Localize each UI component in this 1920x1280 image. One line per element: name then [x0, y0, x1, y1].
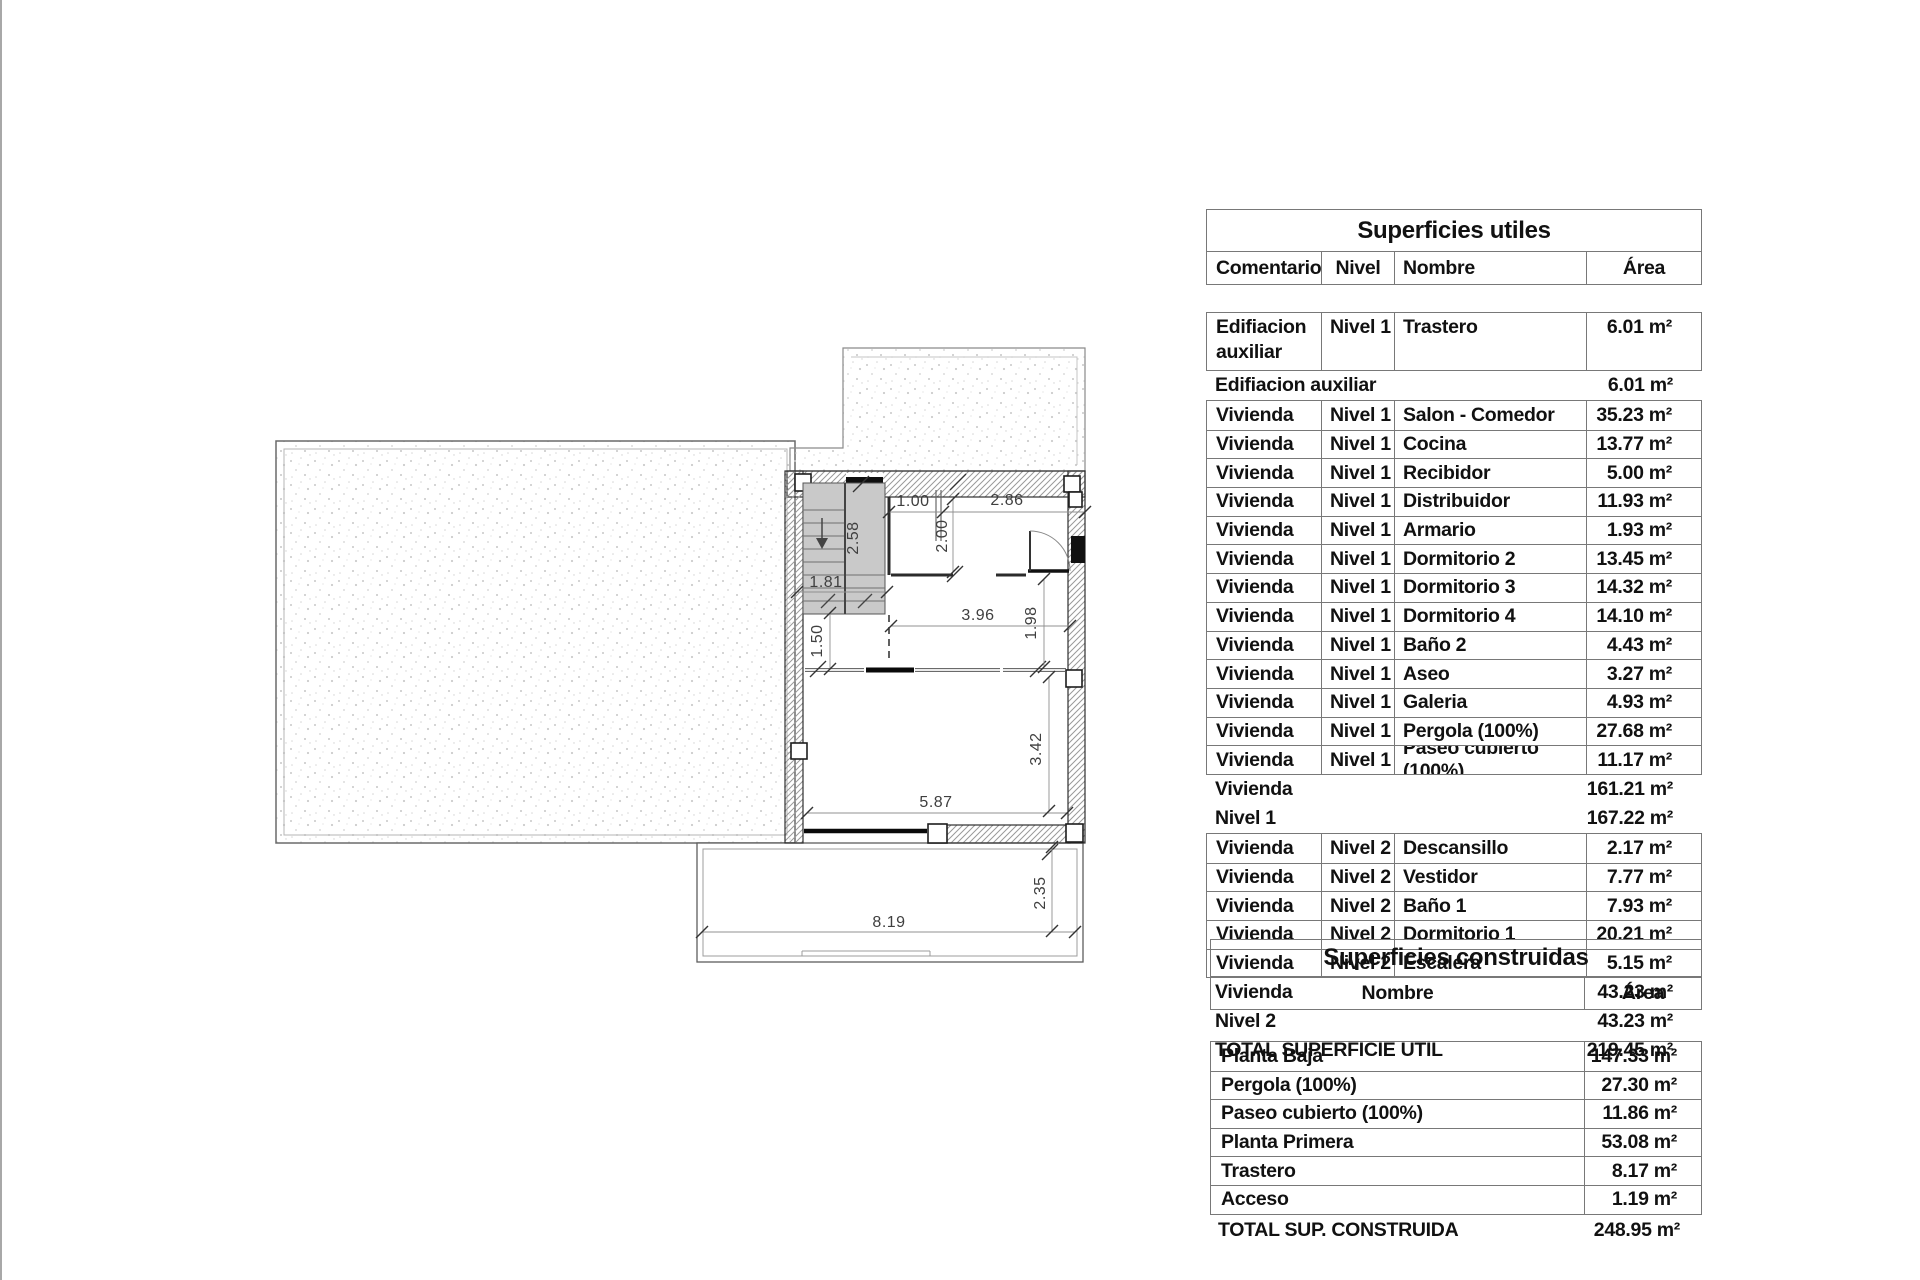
table-row: ViviendaNivel 1Armario1.93 m² — [1207, 516, 1701, 545]
column-header-nombre: Nombre — [1211, 977, 1584, 1009]
dimension-label: 2.35 — [1032, 876, 1049, 909]
cell-nombre: Dormitorio 3 — [1394, 574, 1586, 602]
table-row: Pergola (100%)27.30 m² — [1211, 1071, 1701, 1100]
cell-nombre: Aseo — [1394, 660, 1586, 688]
table-subtotal-row: Vivienda161.21 m² — [1206, 775, 1702, 804]
cell-area: 11.17 m² — [1586, 746, 1701, 774]
cell-nivel: Nivel 1 — [1321, 313, 1394, 370]
cell-comentarios: Vivienda — [1207, 660, 1321, 688]
column-header-nivel: Nivel — [1321, 252, 1394, 284]
cell-nombre: Armario — [1394, 517, 1586, 545]
table-subtotal-row: Nivel 1167.22 m² — [1206, 804, 1702, 833]
cell-comentarios: Vivienda — [1207, 401, 1321, 430]
cell-comentarios: Vivienda — [1207, 517, 1321, 545]
table-row: Edifiacion auxiliarNivel 1Trastero6.01 m… — [1207, 313, 1701, 370]
subtotal-value: 161.21 m² — [1587, 778, 1702, 801]
cell-area: 14.10 m² — [1586, 603, 1701, 631]
cell-nombre: Trastero — [1394, 313, 1586, 370]
cell-nombre: Cocina — [1394, 431, 1586, 459]
table-subtotal-row: Edifiacion auxiliar6.01 m² — [1206, 371, 1702, 400]
cell-comentarios: Vivienda — [1207, 603, 1321, 631]
cell-nombre: Paseo cubierto (100%) — [1211, 1100, 1584, 1128]
cell-nombre: Dormitorio 2 — [1394, 545, 1586, 573]
cell-nivel: Nivel 1 — [1321, 431, 1394, 459]
dimension-label: 3.42 — [1028, 732, 1045, 765]
cell-area: 11.93 m² — [1586, 488, 1701, 516]
cell-area: 1.19 m² — [1584, 1186, 1701, 1214]
cell-comentarios: Vivienda — [1207, 632, 1321, 660]
table-row: Planta Baja147.33 m² — [1211, 1042, 1701, 1071]
cell-comentarios: Edifiacion auxiliar — [1207, 313, 1321, 370]
table-row: ViviendaNivel 1Dormitorio 414.10 m² — [1207, 602, 1701, 631]
column-header-comentarios: Comentarios — [1207, 252, 1321, 284]
table-row: ViviendaNivel 1Dormitorio 213.45 m² — [1207, 544, 1701, 573]
cell-nombre: Baño 1 — [1394, 892, 1586, 920]
cell-nombre: Distribuidor — [1394, 488, 1586, 516]
table-row: ViviendaNivel 1Baño 24.43 m² — [1207, 631, 1701, 660]
cell-nivel: Nivel 1 — [1321, 401, 1394, 430]
superficies-utiles-table: Superficies utiles Comentarios Nivel Nom… — [1206, 209, 1702, 1065]
subtotal-label: Vivienda — [1206, 778, 1292, 801]
superficies-construidas-table: Superficies construidas Nombre Área Plan… — [1210, 939, 1702, 1247]
cell-nombre: Descansillo — [1394, 834, 1586, 863]
dimension-label: 1.98 — [1023, 606, 1040, 639]
cell-area: 27.30 m² — [1584, 1072, 1701, 1100]
table-row: Paseo cubierto (100%)11.86 m² — [1211, 1099, 1701, 1128]
cell-nombre: Planta Primera — [1211, 1129, 1584, 1157]
cell-area: 1.93 m² — [1586, 517, 1701, 545]
cell-nombre: Trastero — [1211, 1157, 1584, 1185]
patio-area — [276, 441, 795, 843]
cell-nombre: Galeria — [1394, 689, 1586, 717]
table-row: ViviendaNivel 1Pergola (100%)27.68 m² — [1207, 717, 1701, 746]
cell-area: 8.17 m² — [1584, 1157, 1701, 1185]
cell-area: 4.43 m² — [1586, 632, 1701, 660]
cell-area: 2.17 m² — [1586, 834, 1701, 863]
cell-comentarios: Vivienda — [1207, 545, 1321, 573]
table-row: ViviendaNivel 2Baño 17.93 m² — [1207, 891, 1701, 920]
cell-area: 53.08 m² — [1584, 1129, 1701, 1157]
table-title: Superficies utiles — [1207, 210, 1701, 251]
cell-nombre: Baño 2 — [1394, 632, 1586, 660]
cell-comentarios: Vivienda — [1207, 892, 1321, 920]
cell-comentarios: Vivienda — [1207, 718, 1321, 746]
table-row: Planta Primera53.08 m² — [1211, 1128, 1701, 1157]
cell-nivel: Nivel 1 — [1321, 603, 1394, 631]
cell-comentarios: Vivienda — [1207, 746, 1321, 774]
porch — [697, 843, 1083, 962]
cell-area: 14.32 m² — [1586, 574, 1701, 602]
cell-nombre: Acceso — [1211, 1186, 1584, 1214]
subtotal-value: 6.01 m² — [1608, 374, 1702, 397]
cell-area: 6.01 m² — [1586, 313, 1701, 370]
cell-area: 147.33 m² — [1584, 1042, 1701, 1071]
page: { "colors": { "table_border": "#787878",… — [0, 0, 1920, 1280]
terrace-area — [790, 348, 1085, 471]
table-row: Trastero8.17 m² — [1211, 1156, 1701, 1185]
cell-area: 27.68 m² — [1586, 718, 1701, 746]
dimension-label: 2.00 — [934, 519, 951, 552]
cell-nombre: Salon - Comedor — [1394, 401, 1586, 430]
door-arc — [1028, 531, 1070, 571]
cell-nivel: Nivel 2 — [1321, 892, 1394, 920]
table-row: ViviendaNivel 1Galeria4.93 m² — [1207, 688, 1701, 717]
cell-comentarios: Vivienda — [1207, 864, 1321, 892]
dimension-label: 2.86 — [990, 492, 1023, 509]
subtotal-label: Nivel 1 — [1206, 807, 1276, 830]
cell-nivel: Nivel 2 — [1321, 834, 1394, 863]
table-row: ViviendaNivel 1Aseo3.27 m² — [1207, 659, 1701, 688]
dimension-label: 8.19 — [872, 914, 905, 931]
cell-nombre: Planta Baja — [1211, 1042, 1584, 1071]
cell-nivel: Nivel 1 — [1321, 545, 1394, 573]
cell-nivel: Nivel 1 — [1321, 689, 1394, 717]
cell-area: 35.23 m² — [1586, 401, 1701, 430]
dimension-label: 5.87 — [919, 794, 952, 811]
subtotal-label: Edifiacion auxiliar — [1206, 374, 1376, 397]
table-row: ViviendaNivel 1Cocina13.77 m² — [1207, 430, 1701, 459]
cell-nombre: Pergola (100%) — [1211, 1072, 1584, 1100]
cell-nombre: Paseo cubierto (100%) — [1394, 746, 1586, 774]
wall-block — [1071, 536, 1085, 563]
cell-nivel: Nivel 1 — [1321, 718, 1394, 746]
cell-comentarios: Vivienda — [1207, 574, 1321, 602]
cell-comentarios: Vivienda — [1207, 431, 1321, 459]
cell-comentarios: Vivienda — [1207, 459, 1321, 487]
cell-area: 7.93 m² — [1586, 892, 1701, 920]
cell-area: 13.45 m² — [1586, 545, 1701, 573]
cell-area: 11.86 m² — [1584, 1100, 1701, 1128]
cell-comentarios: Vivienda — [1207, 689, 1321, 717]
cell-nivel: Nivel 1 — [1321, 459, 1394, 487]
table-row: ViviendaNivel 1Distribuidor11.93 m² — [1207, 487, 1701, 516]
cell-nivel: Nivel 2 — [1321, 864, 1394, 892]
total-label: TOTAL SUP. CONSTRUIDA — [1210, 1219, 1458, 1242]
cell-comentarios: Vivienda — [1207, 834, 1321, 863]
cell-area: 4.93 m² — [1586, 689, 1701, 717]
dimension-label: 1.00 — [896, 493, 929, 510]
table-row: ViviendaNivel 1Paseo cubierto (100%)11.1… — [1207, 745, 1701, 774]
cell-nombre: Pergola (100%) — [1394, 718, 1586, 746]
table-row: ViviendaNivel 1Dormitorio 314.32 m² — [1207, 573, 1701, 602]
table-row: ViviendaNivel 1Recibidor5.00 m² — [1207, 458, 1701, 487]
table-row: ViviendaNivel 2Vestidor7.77 m² — [1207, 863, 1701, 892]
cell-nivel: Nivel 1 — [1321, 746, 1394, 774]
total-value: 248.95 m² — [1594, 1219, 1702, 1242]
table-row: ViviendaNivel 2Descansillo2.17 m² — [1207, 834, 1701, 863]
table-row: Acceso1.19 m² — [1211, 1185, 1701, 1214]
table-title: Superficies construidas — [1211, 940, 1701, 976]
dimension-label: 1.81 — [809, 574, 842, 591]
column-header-area: Área — [1586, 252, 1701, 284]
column-header-nombre: Nombre — [1394, 252, 1586, 284]
cell-area: 7.77 m² — [1586, 864, 1701, 892]
cell-nombre: Dormitorio 4 — [1394, 603, 1586, 631]
cell-area: 3.27 m² — [1586, 660, 1701, 688]
dimension-label: 2.58 — [845, 521, 862, 554]
table-header-row: Nombre Área — [1211, 976, 1701, 1009]
cell-nivel: Nivel 1 — [1321, 517, 1394, 545]
table-header-row: Comentarios Nivel Nombre Área — [1207, 251, 1701, 284]
cell-comentarios: Vivienda — [1207, 488, 1321, 516]
cell-nombre: Recibidor — [1394, 459, 1586, 487]
cell-nivel: Nivel 1 — [1321, 488, 1394, 516]
cell-nivel: Nivel 1 — [1321, 660, 1394, 688]
cell-area: 5.00 m² — [1586, 459, 1701, 487]
cell-nivel: Nivel 1 — [1321, 574, 1394, 602]
cell-nivel: Nivel 1 — [1321, 632, 1394, 660]
table-row: ViviendaNivel 1Salon - Comedor35.23 m² — [1207, 401, 1701, 430]
stairs — [803, 483, 885, 614]
column-header-area: Área — [1584, 977, 1701, 1009]
cell-nombre: Vestidor — [1394, 864, 1586, 892]
cell-area: 13.77 m² — [1586, 431, 1701, 459]
dimension-label: 1.50 — [809, 624, 826, 657]
table-total-row: TOTAL SUP. CONSTRUIDA 248.95 m² — [1210, 1215, 1702, 1247]
dimension-label: 3.96 — [961, 607, 994, 624]
subtotal-value: 167.22 m² — [1587, 807, 1702, 830]
